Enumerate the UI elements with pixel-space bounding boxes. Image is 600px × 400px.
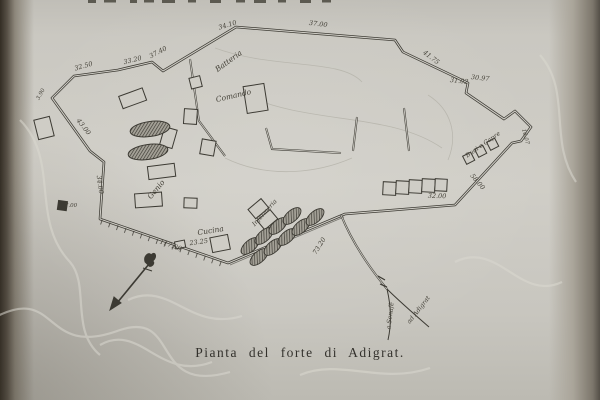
measurement: 73.20 [311,236,328,256]
structure-labels: Batteria Comando Genio Cucina Infermeria… [146,48,503,329]
measurement: 37.40 [148,44,168,60]
measurement: 41.75 [421,48,441,66]
measurement: 23.25 [188,237,209,248]
north-arrow-ornament [145,253,156,266]
measurement: 3.90 [35,87,47,101]
measurement: 34.10 [217,19,237,32]
storehouse-square [422,179,436,193]
measurement: 31.02 [450,76,469,86]
measurement: 32.50 [73,60,93,73]
storehouse-square [383,182,397,196]
building-genio-a [147,163,175,179]
label-road-senafe: a Senafè [385,302,395,330]
building-rect [119,88,147,109]
measurement: 117.00 [159,237,183,252]
measurement: 37.00 [309,19,328,29]
fort-inner-walls [190,59,409,156]
measurement: 30.97 [471,73,491,83]
building-rect [183,109,197,125]
building-rect [34,116,54,139]
measurement: 34.00 [95,175,106,195]
cropped-text-remnant [88,0,331,3]
storehouse-square [409,180,423,194]
label-cucina: Cucina [197,224,225,237]
building-rect [200,139,216,156]
storehouse-square [396,181,410,195]
measurement: 7.00 [65,203,78,209]
building-cucina [210,234,231,252]
road-arrow-barbs [378,276,387,287]
hatched-oval [127,142,169,162]
figure-caption: Pianta del forte di Adigrat. [0,345,600,361]
measurement: 32.00 [428,192,447,201]
building-rect [184,198,197,208]
north-arrow [110,253,156,310]
roads [341,215,429,340]
fort-plan-drawing: 32.50 33.20 37.40 34.10 37.00 41.75 31.0… [0,0,600,400]
storehouse-square [435,179,448,192]
book-page-photo: 32.50 33.20 37.40 34.10 37.00 41.75 31.0… [0,0,600,400]
building-rect [189,76,202,89]
